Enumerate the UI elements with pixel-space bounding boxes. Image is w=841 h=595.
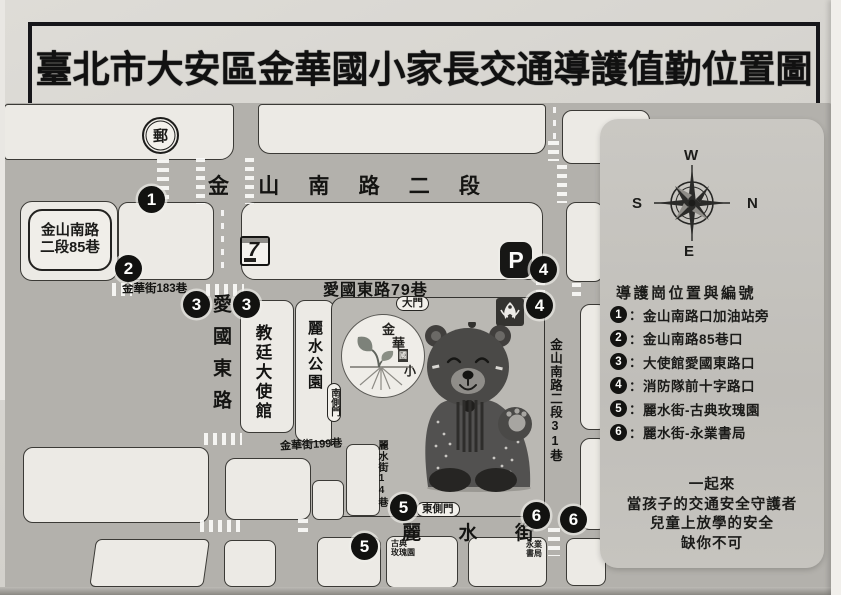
- block-south-2: [224, 540, 276, 587]
- marker-number: 4: [539, 260, 548, 280]
- marker-number: 5: [360, 537, 369, 557]
- road-char: 山: [258, 170, 279, 200]
- legend-item-label: 大使館愛國東路口: [643, 352, 755, 372]
- legend-item: 2 ： 金山南路85巷口: [610, 327, 816, 351]
- block-east-1: [566, 202, 604, 282]
- legend-item-label: 金山南路85巷口: [643, 328, 743, 348]
- slogan-line: 兒童上放學的安全: [600, 515, 824, 535]
- marker-3a: 3: [183, 291, 210, 318]
- road-char: 段: [459, 170, 480, 200]
- marker-number: 4: [535, 296, 544, 316]
- legend-item-number: 3: [610, 353, 627, 370]
- lane85-label-box: 金山南路 二段85巷: [28, 209, 112, 271]
- legend-colon: ：: [629, 376, 642, 395]
- compass-w: W: [684, 147, 698, 164]
- legend-panel: W S N E: [600, 119, 824, 568]
- parking-icon: P: [500, 242, 532, 278]
- block-mid-2: [312, 480, 344, 520]
- marker-5a: 5: [390, 494, 417, 521]
- legend-items: 1 ： 金山南路口加油站旁 2 ： 金山南路85巷口 3 ： 大使館愛國東路口 …: [610, 303, 816, 444]
- compass-e: E: [684, 243, 694, 260]
- lane85-line2: 二段85巷: [40, 240, 100, 257]
- road-label-lishui-14: 麗水街14巷: [374, 440, 389, 508]
- road-char: 南: [308, 170, 329, 200]
- legend-colon: ：: [629, 399, 642, 418]
- east-gate-label: 東側門: [416, 502, 460, 517]
- legend-item-label: 麗水街-古典玫瑰園: [643, 399, 760, 419]
- page-edge-left: [0, 0, 5, 400]
- parking-glyph: P: [508, 247, 523, 274]
- main-gate-label: 大門: [396, 296, 429, 311]
- crosswalk: [204, 433, 242, 445]
- block-top-center: [258, 104, 546, 154]
- road-char: 金: [208, 170, 229, 200]
- road-label-aiguo-east: 愛國東路: [207, 294, 234, 422]
- legend-item: 4 ： 消防隊前十字路口: [610, 374, 816, 398]
- crosswalk: [298, 519, 308, 534]
- marker-number: 6: [569, 510, 578, 530]
- compass-rose-icon: [652, 163, 732, 243]
- marker-number: 6: [532, 506, 541, 526]
- lane-divider: [221, 210, 224, 272]
- legend-colon: ：: [629, 305, 642, 324]
- marker-number: 5: [399, 498, 408, 518]
- legend-colon: ：: [629, 352, 642, 371]
- legend-item-number: 6: [610, 424, 627, 441]
- slogan-line: 缺你不可: [600, 535, 824, 555]
- legend-item: 1 ： 金山南路口加油站旁: [610, 303, 816, 327]
- legend-item: 5 ： 麗水街-古典玫瑰園: [610, 397, 816, 421]
- marker-number: 2: [124, 259, 133, 279]
- slogan-line: 一起來: [600, 476, 824, 496]
- embassy-label: 教廷大使館: [250, 324, 274, 422]
- legend-item-number: 4: [610, 377, 627, 394]
- lane85-line1: 金山南路: [41, 223, 99, 240]
- legend-item-label: 消防隊前十字路口: [643, 375, 755, 395]
- legend-item-number: 2: [610, 330, 627, 347]
- compass-n: N: [747, 195, 758, 212]
- road-char: 二: [409, 170, 430, 200]
- crosswalk: [572, 283, 581, 298]
- legend-item-number: 1: [610, 306, 627, 323]
- legend-item-number: 5: [610, 400, 627, 417]
- marker-4a: 4: [530, 256, 557, 283]
- marker-1: 1: [138, 186, 165, 213]
- legend-item: 3 ： 大使館愛國東路口: [610, 350, 816, 374]
- seven-wordmark: [244, 258, 256, 262]
- slogan-line: 當孩子的交通安全守護者: [600, 496, 824, 516]
- road-label-lishui: 麗 水 街: [402, 518, 534, 545]
- legend-colon: ：: [629, 329, 642, 348]
- marker-2: 2: [115, 255, 142, 282]
- legend-item: 6 ： 麗水街-永業書局: [610, 421, 816, 445]
- page-edge-bottom: [0, 587, 841, 595]
- legend-colon: ：: [629, 423, 642, 442]
- legend-item-label: 金山南路口加油站旁: [643, 305, 769, 325]
- marker-4b: 4: [526, 292, 553, 319]
- marker-6a: 6: [523, 502, 550, 529]
- block-center: [241, 202, 543, 280]
- bookstore-label-2: 書局: [526, 549, 542, 558]
- crosswalk: [548, 141, 559, 161]
- road-label-jinshan-31: 金山南路二段31巷: [546, 338, 565, 463]
- marker-5b: 5: [351, 533, 378, 560]
- crosswalk: [200, 520, 240, 532]
- road-label-jinshan-s-rd: 金 山 南 路 二 段: [208, 170, 480, 200]
- compass-s: S: [632, 195, 642, 212]
- road-label-jinhua-183: 金華街183巷: [122, 280, 187, 296]
- post-glyph: 郵: [153, 125, 168, 146]
- map-page: 臺北市大安區金華國小家長交通導護值勤位置圖 金山南路 二段85巷 古典 玫瑰園 …: [0, 0, 841, 595]
- logo-char: 國: [398, 349, 408, 362]
- rose-garden-label-2: 玫瑰園: [391, 548, 457, 557]
- crosswalk: [196, 158, 205, 204]
- legend-title: 導護崗位置與編號: [616, 282, 756, 303]
- legend-item-label: 麗水街-永業書局: [643, 422, 746, 442]
- road-char: 麗: [402, 518, 421, 545]
- crosswalk: [557, 165, 567, 203]
- marker-number: 3: [242, 295, 251, 315]
- block-bottom-left: [23, 447, 209, 523]
- seven-eleven-icon: 7: [240, 236, 270, 266]
- page-edge-right: [831, 0, 841, 595]
- post-office-icon: 郵: [142, 117, 179, 154]
- logo-char: 小: [404, 362, 416, 379]
- road-char: 水: [458, 518, 477, 545]
- marker-number: 3: [192, 295, 201, 315]
- school-logo: 金 華 國 小: [341, 314, 425, 398]
- road-char: 路: [359, 170, 380, 200]
- road-label-jinhua-199: 金華街199巷: [280, 434, 343, 453]
- marker-6b: 6: [560, 506, 587, 533]
- bear-mascot: [420, 322, 538, 494]
- south-gate-label: 南側門: [327, 383, 341, 422]
- title-banner: 臺北市大安區金華國小家長交通導護值勤位置圖: [28, 22, 820, 110]
- crosswalk: [548, 528, 560, 556]
- page-title: 臺北市大安區金華國小家長交通導護值勤位置圖: [36, 39, 813, 93]
- block-top-left: [4, 104, 234, 160]
- lane-divider: [553, 107, 556, 141]
- block-mid-1: [225, 458, 311, 520]
- marker-number: 1: [147, 190, 156, 210]
- lishui-park-label: 麗水公園: [304, 320, 325, 392]
- slogan: 一起來 當孩子的交通安全守護者 兒童上放學的安全 缺你不可: [600, 476, 824, 554]
- block-south-1: [89, 539, 210, 587]
- marker-3b: 3: [233, 291, 260, 318]
